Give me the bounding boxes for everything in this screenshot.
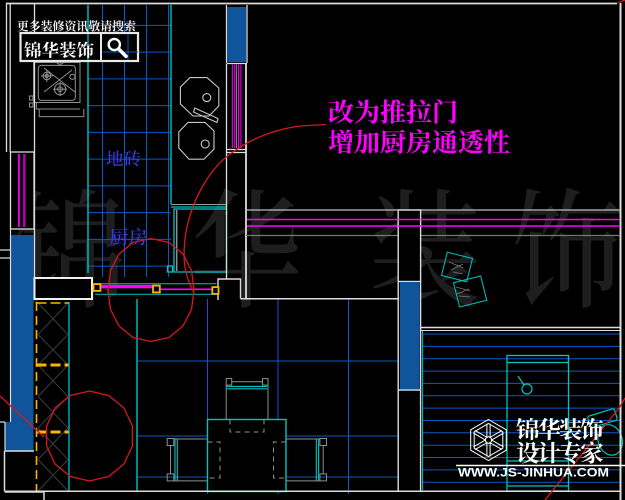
svg-text:WWW.JS-JINHUA.COM: WWW.JS-JINHUA.COM xyxy=(458,467,609,480)
